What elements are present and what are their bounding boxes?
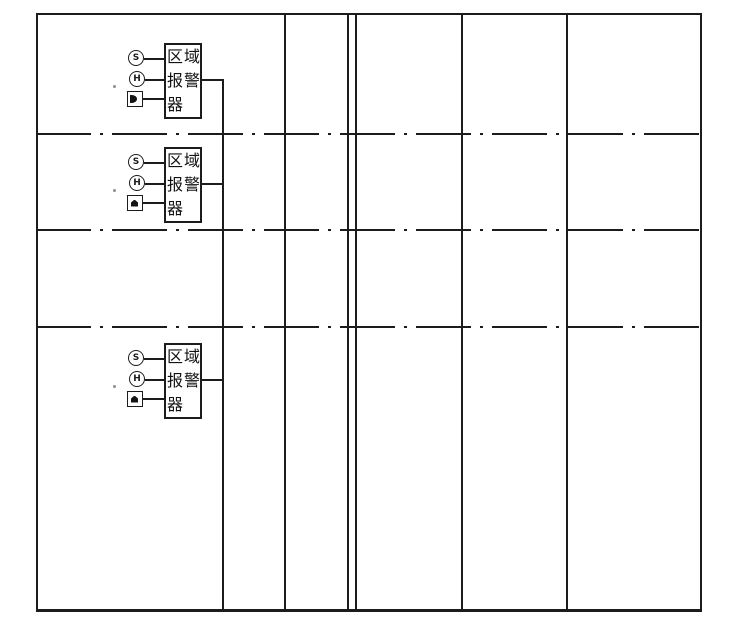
wire-smoke-to-box: [144, 58, 164, 60]
zone-alarm-box-text-line-2: 报警: [166, 173, 200, 197]
zone-alarm-box: 区域 报警 器: [164, 147, 202, 223]
zone-alarm-box-text-line-2: 报警: [166, 69, 200, 93]
wire-heat-to-box: [145, 379, 164, 381]
grid-line-vertical-2: [347, 13, 349, 612]
wire-box-output: [202, 379, 223, 381]
zone-alarm-box: 区域 报警 器: [164, 343, 202, 419]
drawing-canvas: S H 区域 报警 器 S H 区域: [0, 0, 745, 626]
smoke-detector-symbol: S: [128, 50, 144, 66]
centerline-axis-3: [36, 326, 702, 328]
grid-line-vertical-5: [566, 13, 568, 612]
manual-call-point-symbol: [127, 195, 143, 211]
wire-heat-to-box: [145, 79, 164, 81]
zone-alarm-box-text-line-3: 器: [166, 393, 200, 417]
smoke-detector-label: S: [133, 54, 139, 63]
grid-line-vertical-1: [284, 13, 286, 612]
zone-alarm-box: 区域 报警 器: [164, 43, 202, 119]
zone-alarm-unit-2: S H 区域 报警 器: [110, 144, 260, 228]
call-point-glyph-icon: [131, 396, 138, 403]
wire-box-output: [202, 183, 223, 185]
zone-alarm-box-text-line-1: 区域: [166, 45, 200, 69]
zone-alarm-box-text-line-1: 区域: [166, 345, 200, 369]
smoke-detector-label: S: [133, 354, 139, 363]
zone-alarm-unit-3: S H 区域 报警 器: [110, 340, 260, 424]
centerline-axis-2: [36, 229, 702, 231]
call-point-glyph-icon: [131, 200, 138, 207]
stray-dot: [113, 385, 116, 388]
wire-smoke-to-box: [144, 358, 164, 360]
wire-box-output: [202, 79, 223, 81]
wire-callpoint-to-box: [143, 202, 164, 204]
grid-line-vertical-3: [355, 13, 357, 612]
heat-detector-symbol: H: [129, 175, 145, 191]
heat-detector-symbol: H: [129, 371, 145, 387]
heat-detector-label: H: [133, 179, 141, 188]
zone-alarm-box-text-line-2: 报警: [166, 369, 200, 393]
heat-detector-label: H: [133, 75, 141, 84]
stray-dot: [113, 189, 116, 192]
manual-call-point-symbol: [127, 91, 143, 107]
zone-alarm-box-text-line-3: 器: [166, 93, 200, 117]
smoke-detector-symbol: S: [128, 154, 144, 170]
smoke-detector-label: S: [133, 158, 139, 167]
heat-detector-symbol: H: [129, 71, 145, 87]
grid-line-vertical-4: [461, 13, 463, 612]
zone-alarm-box-text-line-1: 区域: [166, 149, 200, 173]
wire-callpoint-to-box: [143, 398, 164, 400]
centerline-axis-1: [36, 133, 702, 135]
stray-dot: [113, 85, 116, 88]
manual-call-point-symbol: [127, 391, 143, 407]
wire-callpoint-to-box: [143, 98, 164, 100]
wire-smoke-to-box: [144, 162, 164, 164]
smoke-detector-symbol: S: [128, 350, 144, 366]
call-point-glyph-icon: [130, 95, 137, 103]
zone-alarm-box-text-line-3: 器: [166, 197, 200, 221]
zone-alarm-unit-1: S H 区域 报警 器: [110, 40, 260, 124]
heat-detector-label: H: [133, 375, 141, 384]
wire-heat-to-box: [145, 183, 164, 185]
